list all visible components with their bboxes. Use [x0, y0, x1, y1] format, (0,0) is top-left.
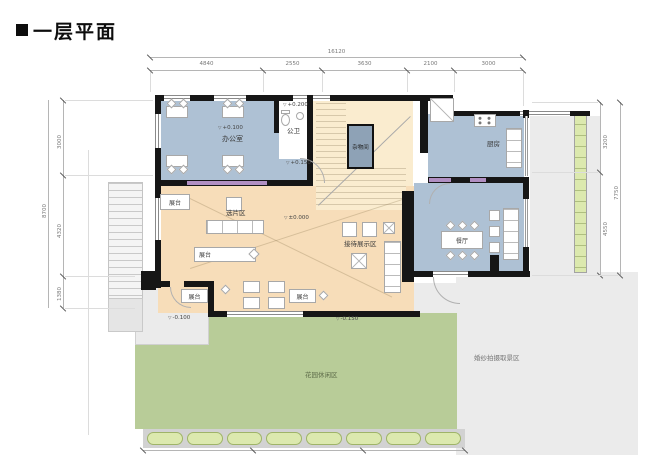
bottom-hedge-band	[143, 429, 465, 448]
shelf-box	[489, 226, 500, 237]
door-kitchen	[429, 178, 451, 182]
dim-right-seg2: 4550	[603, 222, 609, 236]
wall-hall-bottom-left	[155, 281, 170, 287]
table	[268, 297, 285, 309]
wall-pier	[490, 255, 499, 272]
site-boundary-line	[88, 150, 89, 435]
landing-elevation: +0.150	[286, 160, 311, 166]
wall-stair-kitchen	[420, 95, 428, 153]
sofa-row	[206, 220, 264, 234]
wc-label: 公卫	[287, 125, 300, 135]
ext-line	[454, 72, 455, 92]
wall-wc-left	[274, 95, 279, 133]
glass-wall-dining	[525, 199, 528, 247]
display-shelf	[384, 241, 401, 293]
ext-line	[65, 276, 135, 277]
terrace-elevation: -0.100	[168, 315, 190, 321]
stair-landing	[108, 298, 143, 332]
wall-dining-right	[523, 247, 529, 277]
ext-line	[150, 72, 151, 92]
window	[227, 311, 303, 317]
ext-line	[263, 72, 264, 92]
wc-elevation: +0.200	[283, 102, 308, 108]
dim-line-right-outer	[620, 102, 621, 275]
ext-line	[322, 72, 323, 92]
stage-box-mid: 展台	[194, 247, 256, 262]
hedge-bush	[425, 432, 461, 445]
garden-elevation: -0.150	[336, 316, 358, 322]
ext-line	[65, 308, 135, 309]
hedge-bush	[386, 432, 422, 445]
hedge-bush	[187, 432, 223, 445]
wall-dining-bottom	[414, 271, 530, 277]
hedge-bush	[346, 432, 382, 445]
stair-flight-upper	[316, 103, 346, 167]
ext-line	[65, 100, 153, 101]
storage-room: 杂物间	[347, 124, 374, 169]
dining-cabinet	[503, 208, 519, 260]
desk	[166, 106, 188, 118]
display-case	[362, 222, 377, 237]
hedge-bush	[147, 432, 183, 445]
ext-line	[532, 275, 618, 276]
title-bullet-square	[16, 24, 28, 36]
dim-left-total: 8700	[42, 204, 48, 218]
dim-right-total: 7750	[614, 186, 620, 200]
stage-label: 展台	[188, 292, 200, 301]
hall-elevation: ±0.000	[284, 215, 309, 221]
hedge-bush	[266, 432, 302, 445]
stage-label: 展台	[199, 250, 211, 259]
kitchen-sink	[430, 98, 454, 122]
table	[268, 281, 285, 293]
ext-line	[532, 172, 598, 173]
dining-table: 餐厅	[441, 231, 483, 249]
stage-label: 展台	[296, 292, 308, 301]
pillar	[141, 271, 156, 290]
office-label: 办公室	[222, 134, 243, 144]
dim-top-seg5: 3000	[454, 61, 523, 67]
dim-line-left-outer	[48, 100, 49, 308]
dim-left-seg1: 3000	[57, 135, 63, 149]
stage-box-bottom-right: 展台	[289, 289, 316, 303]
window	[155, 114, 161, 148]
wall-stub	[523, 177, 529, 199]
dim-top-total: 16120	[150, 49, 523, 55]
stove-icon	[474, 114, 496, 127]
table	[243, 281, 260, 293]
window	[164, 95, 190, 101]
hedge-bush	[227, 432, 263, 445]
dim-left-seg3: 1380	[57, 287, 63, 301]
dining-label: 餐厅	[456, 236, 468, 245]
desk	[222, 106, 244, 118]
ext-line	[407, 72, 408, 92]
storage-label: 杂物间	[352, 143, 369, 151]
sink-icon	[296, 112, 304, 120]
ext-line	[523, 72, 524, 106]
dim-line-bottom	[143, 450, 465, 451]
page-title: 一层平面	[33, 17, 117, 44]
dim-line	[150, 70, 523, 71]
door-kitchen2	[470, 178, 486, 182]
display-case	[342, 222, 357, 237]
garden-label: 花园休闲区	[305, 369, 338, 379]
office-elevation: +0.100	[218, 125, 243, 131]
dim-line-right	[600, 102, 601, 275]
floor-plan-canvas: 一层平面 杂物间	[0, 0, 650, 459]
reception-display-label: 接待展示区	[344, 238, 377, 248]
stage-box-topleft: 展台	[160, 194, 190, 210]
photo-zone-area	[456, 272, 638, 455]
dim-top-seg3: 3630	[322, 61, 407, 67]
outdoor-stair	[108, 182, 143, 300]
ext-line	[65, 175, 153, 176]
hedge-bush	[306, 432, 342, 445]
kitchen-counter	[506, 128, 522, 168]
stage-label: 展台	[169, 198, 181, 207]
dim-top-seg2: 2550	[263, 61, 322, 67]
glass-wall-kitchen	[525, 116, 528, 176]
dim-right-seg1: 3200	[603, 135, 609, 149]
dim-left-seg2: 4320	[57, 224, 63, 238]
right-hedge-strip	[574, 112, 587, 273]
shelf-box	[489, 242, 500, 253]
reception-table	[351, 253, 367, 269]
stair-flight-lower	[316, 168, 406, 210]
dim-top-seg4: 2100	[407, 61, 454, 67]
shelf-box	[489, 210, 500, 221]
dim-top-seg1: 4840	[150, 61, 263, 67]
kitchen-label: 厨房	[487, 138, 500, 148]
ext-line	[532, 102, 598, 103]
wall-hall-dining	[402, 191, 414, 282]
plus-box	[383, 222, 395, 234]
door-office-hall	[187, 181, 267, 185]
table	[243, 297, 260, 309]
right-paving-area	[530, 116, 600, 273]
stage-box-bottom-left: 展台	[181, 289, 208, 303]
dim-line	[150, 57, 523, 58]
selection-area-label: 选片区	[226, 207, 246, 217]
photo-zone-label: 婚纱拍摄取景区	[474, 352, 520, 362]
